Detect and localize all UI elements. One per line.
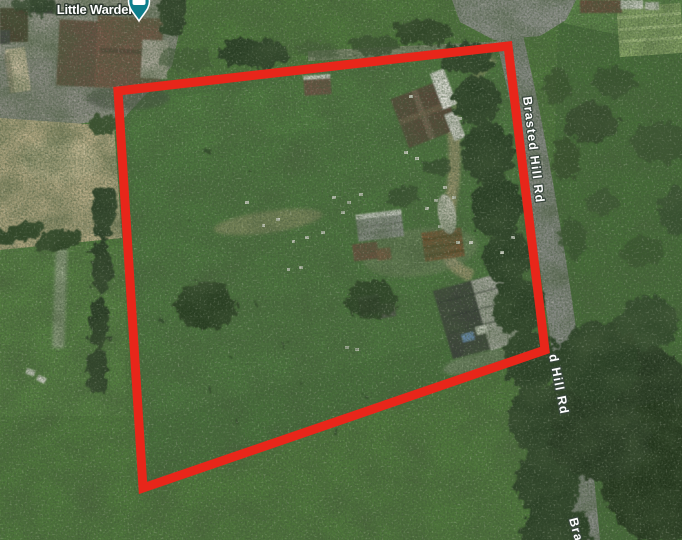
map-canvas[interactable]: Brasted Hill Rd d Hill Rd Bra Little War… [0,0,682,540]
bed-icon [133,0,146,5]
satellite-map[interactable]: Brasted Hill Rd d Hill Rd Bra Little War… [0,0,682,540]
photo-grain [0,0,682,540]
place-label-little-warden[interactable]: Little Warden [57,2,137,17]
